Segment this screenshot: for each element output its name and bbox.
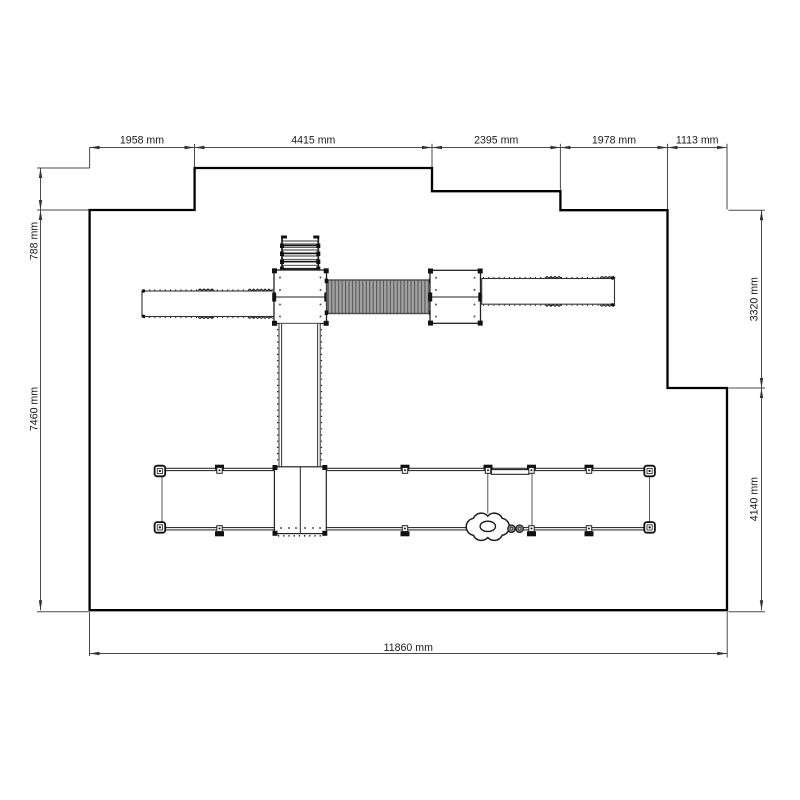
svg-text:4140 mm: 4140 mm <box>749 477 761 521</box>
svg-text:2395 mm: 2395 mm <box>474 135 518 147</box>
svg-text:4415 mm: 4415 mm <box>291 135 335 147</box>
svg-text:7460 mm: 7460 mm <box>29 387 41 431</box>
svg-text:788 mm: 788 mm <box>29 222 41 260</box>
svg-text:3320 mm: 3320 mm <box>749 277 761 321</box>
svg-text:11860 mm: 11860 mm <box>384 642 433 654</box>
svg-text:1113 mm: 1113 mm <box>676 135 719 147</box>
svg-text:1978 mm: 1978 mm <box>592 135 636 147</box>
svg-text:1958 mm: 1958 mm <box>120 135 164 147</box>
